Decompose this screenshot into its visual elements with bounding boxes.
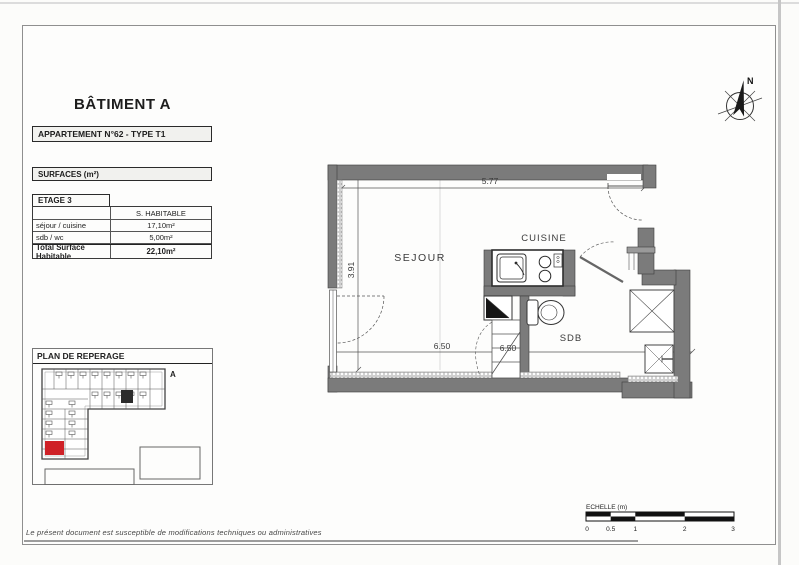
dimension-left: 3.91: [346, 261, 356, 278]
scanned-floorplan-page: BÂTIMENT A APPARTEMENT N°62 - TYPE T1 SU…: [0, 0, 799, 565]
row-label: séjour / cuisine: [33, 220, 111, 231]
scale-tick: 3: [731, 526, 735, 533]
scale-tick: 1: [633, 526, 637, 533]
surfaces-table: S. HABITABLE séjour / cuisine 17,10m² sd…: [32, 206, 212, 259]
surfaces-section-title: SURFACES (m²): [38, 170, 99, 179]
entrance-door: [608, 183, 643, 220]
building-title: BÂTIMENT A: [74, 96, 171, 113]
room-label-cuisine: CUISINE: [521, 233, 567, 244]
washbasin: [645, 345, 673, 373]
apartment-label: APPARTEMENT N°62 - TYPE T1: [38, 129, 165, 139]
scale-tick: 0.5: [606, 526, 615, 533]
scan-edge-right: [778, 0, 781, 565]
niche-shelf: [627, 247, 655, 253]
duct-shaft: [484, 296, 512, 320]
table-header-row: S. HABITABLE: [33, 207, 211, 220]
key-plan: A: [33, 364, 212, 485]
key-plan-building-a: [42, 369, 165, 459]
plan-reperage-title: PLAN DE REPERAGE: [37, 351, 124, 361]
dimension-bottom-2: 6.50: [500, 343, 517, 353]
floor-label: ETAGE 3: [38, 196, 72, 205]
surfaces-section-box: SURFACES (m²): [32, 167, 212, 181]
row-value: 5,00m²: [111, 232, 211, 243]
apartment-label-box: APPARTEMENT N°62 - TYPE T1: [32, 126, 212, 142]
table-total-row: Total Surface Habitable 22,10m²: [33, 244, 211, 258]
scale-label: ECHELLE (m): [586, 504, 627, 511]
floor-plan: SEJOUR CUISINE SDB 5.77 3.91 6.50 6.50: [318, 150, 698, 410]
row-label: sdb / wc: [33, 232, 111, 243]
highlighted-apartment: [45, 441, 64, 455]
scan-edge-top: [0, 2, 799, 4]
scale-bar: ECHELLE (m) 0 0.5 1 2 3: [584, 500, 754, 536]
row-value: 17,10m²: [111, 220, 211, 231]
room-label-sdb: SDB: [560, 333, 583, 344]
shower: [630, 290, 674, 332]
footer-divider: [24, 540, 638, 542]
key-plan-building-letter: A: [170, 370, 176, 379]
room-label-sejour: SEJOUR: [394, 252, 446, 264]
table-header-cell: S. HABITABLE: [111, 207, 211, 219]
hob-burner: [539, 270, 551, 282]
kitchenette: [492, 250, 563, 286]
north-label: N: [747, 76, 754, 86]
toilet: [527, 300, 564, 325]
key-plan-building-bottom: [45, 469, 134, 485]
dimension-bottom-1: 6.50: [434, 341, 451, 351]
scale-tick: 2: [683, 526, 687, 533]
north-compass: N: [712, 72, 768, 142]
plan-reperage-title-box: PLAN DE REPERAGE: [33, 349, 212, 364]
hob-burner: [539, 256, 551, 268]
key-plan-stairwell: [121, 390, 133, 403]
footer-note: Le présent document est susceptible de m…: [26, 528, 322, 537]
total-value: 22,10m²: [111, 245, 211, 258]
table-row: séjour / cuisine 17,10m²: [33, 220, 211, 232]
sdb-door: [580, 242, 623, 282]
key-plan-building-right: [140, 447, 200, 479]
entrance-rebate: [607, 174, 641, 180]
french-window: [330, 290, 385, 372]
dimension-top: 5.77: [482, 176, 499, 186]
table-header-empty-cell: [33, 207, 111, 219]
plan-reperage-section: PLAN DE REPERAGE: [32, 348, 213, 485]
scale-tick: 0: [585, 526, 589, 533]
total-label: Total Surface Habitable: [33, 245, 111, 258]
